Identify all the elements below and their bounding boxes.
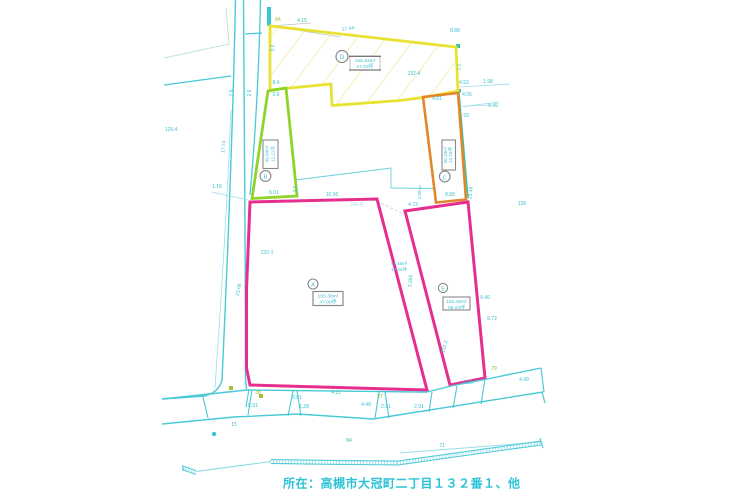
svg-text:84: 84 (346, 438, 352, 444)
svg-text:40.19m²: 40.19m² (443, 146, 448, 163)
svg-text:5.91: 5.91 (248, 403, 258, 409)
svg-text:13.44坪: 13.44坪 (391, 266, 407, 273)
svg-text:10.30: 10.30 (326, 192, 339, 198)
svg-text:44.45m²: 44.45m² (391, 261, 408, 266)
svg-text:(99.4): (99.4) (350, 202, 363, 208)
svg-text:38: 38 (255, 390, 261, 396)
svg-text:9.72: 9.72 (487, 316, 497, 322)
svg-text:27: 27 (377, 394, 383, 400)
svg-text:192.46m²: 192.46m² (446, 299, 467, 305)
svg-text:71: 71 (439, 443, 445, 449)
svg-text:129.4: 129.4 (165, 127, 178, 133)
svg-text:B: B (264, 174, 268, 180)
svg-text:6.35: 6.35 (463, 380, 473, 386)
svg-text:9.01: 9.01 (292, 395, 302, 401)
svg-text:47.00坪: 47.00坪 (319, 299, 336, 306)
svg-text:2.91: 2.91 (381, 404, 391, 410)
svg-text:E: E (441, 286, 445, 292)
svg-text:4.48: 4.48 (519, 377, 529, 383)
svg-text:2.91: 2.91 (414, 404, 424, 410)
svg-text:3.285: 3.285 (408, 274, 415, 287)
svg-text:132-4: 132-4 (408, 71, 421, 77)
svg-text:2.2: 2.2 (457, 63, 462, 70)
svg-text:1.28: 1.28 (299, 404, 309, 410)
svg-text:4.73: 4.73 (408, 202, 418, 208)
svg-text:40.04m²: 40.04m² (265, 145, 270, 162)
svg-text:79: 79 (491, 366, 497, 372)
svg-text:4.11: 4.11 (331, 390, 341, 396)
svg-text:1.16: 1.16 (212, 184, 222, 190)
svg-text:6.01: 6.01 (269, 190, 279, 196)
svg-text:93: 93 (463, 113, 469, 119)
svg-text:C: C (443, 175, 447, 181)
svg-text:4.81: 4.81 (432, 96, 442, 102)
svg-text:84: 84 (275, 17, 281, 23)
svg-text:47.03坪: 47.03坪 (356, 63, 373, 70)
svg-text:A: A (311, 282, 315, 288)
svg-text:58.23坪: 58.23坪 (448, 304, 465, 311)
svg-text:2.5: 2.5 (229, 89, 235, 96)
svg-text:23.48: 23.48 (467, 186, 474, 199)
svg-text:2.6: 2.6 (273, 92, 280, 98)
svg-text:136: 136 (518, 201, 527, 207)
svg-text:155.38m²: 155.38m² (318, 294, 339, 300)
svg-text:12.11坪: 12.11坪 (269, 146, 276, 162)
svg-text:8.88: 8.88 (450, 28, 460, 34)
svg-text:132-1: 132-1 (261, 250, 274, 256)
svg-text:1.09: 1.09 (417, 190, 422, 199)
svg-text:1.98: 1.98 (483, 79, 493, 85)
svg-text:15: 15 (231, 422, 237, 428)
svg-text:12.15坪: 12.15坪 (447, 147, 454, 163)
svg-text:2.6: 2.6 (293, 185, 299, 192)
svg-text:4.15: 4.15 (297, 18, 307, 24)
svg-text:4.48: 4.48 (361, 402, 371, 408)
svg-text:8.88: 8.88 (445, 192, 455, 198)
svg-text:D: D (340, 55, 345, 61)
svg-text:4.93: 4.93 (459, 80, 469, 86)
svg-text:8.4: 8.4 (273, 80, 280, 86)
svg-text:2.6: 2.6 (247, 89, 253, 96)
svg-text:5.49: 5.49 (488, 103, 498, 109)
svg-text:4.05: 4.05 (462, 92, 472, 98)
svg-text:3.2: 3.2 (270, 44, 276, 51)
svg-text:9.46: 9.46 (480, 295, 490, 301)
svg-text:155.33m²: 155.33m² (355, 58, 376, 64)
svg-text:所在：高槻市大冠町二丁目１３２番１、他: 所在：高槻市大冠町二丁目１３２番１、他 (283, 476, 521, 491)
